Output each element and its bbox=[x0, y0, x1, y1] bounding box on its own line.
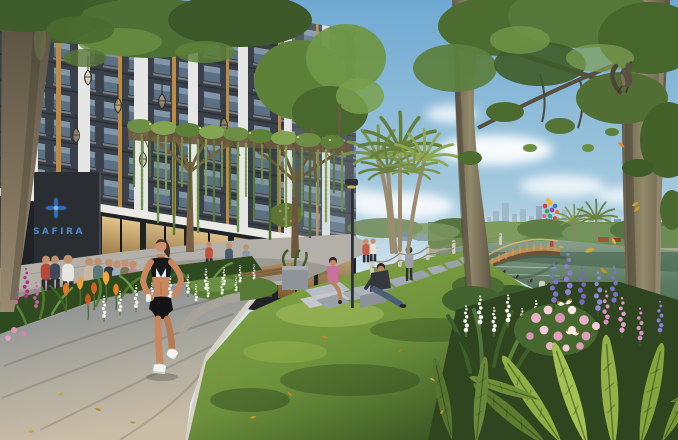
safira-sign-text: SAFIRA bbox=[33, 227, 85, 237]
safira-sign-wall: SAFIRA bbox=[33, 172, 100, 264]
pedestrian-on-bridge bbox=[550, 241, 553, 247]
rendered-scene: SAFIRA bbox=[0, 0, 678, 440]
jogger-leg-front bbox=[158, 319, 160, 363]
scene-canvas: SAFIRA bbox=[0, 0, 678, 440]
